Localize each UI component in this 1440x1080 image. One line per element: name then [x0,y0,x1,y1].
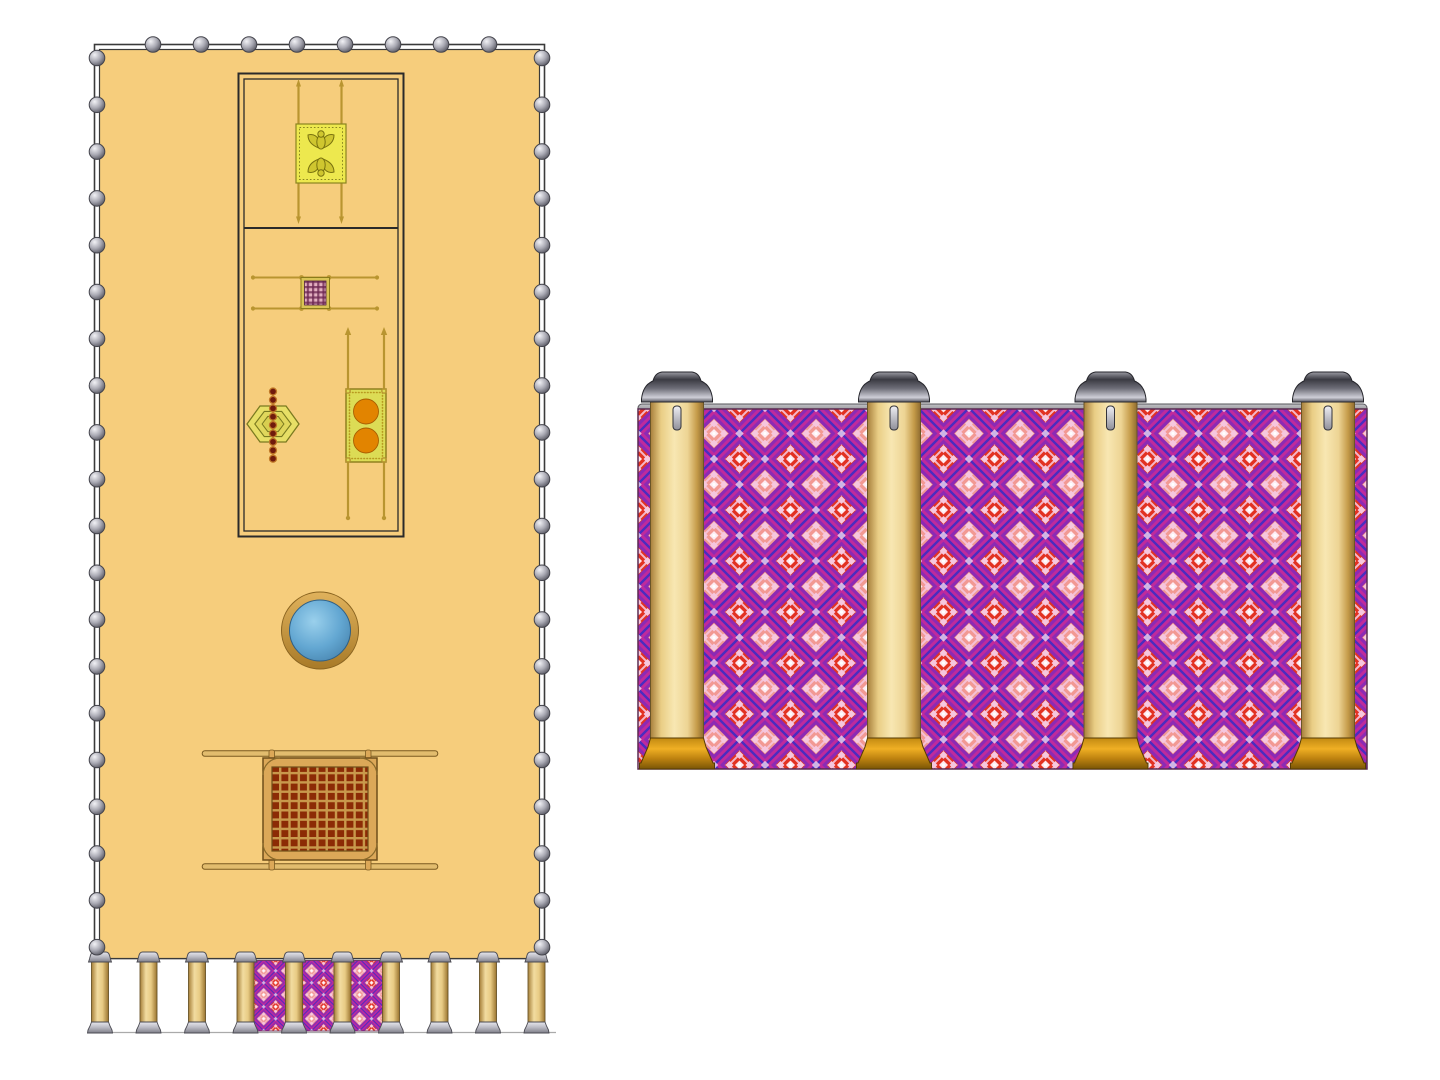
fence-post [89,144,105,160]
fence-post [534,191,550,207]
fence-post [534,237,550,253]
fence-post [89,97,105,113]
fence-post [534,846,550,862]
fence-post [481,37,497,53]
fence-post [89,939,105,955]
tabernacle-illustration [0,0,1440,1080]
court-pillar [640,372,715,769]
fence-post [89,799,105,815]
fence-post [534,50,550,66]
fence-post [89,705,105,721]
courtyard-gate-curtain [246,961,392,1032]
fence-post [89,518,105,534]
lampstand-lamps [270,388,277,462]
fence-post [89,659,105,675]
fence-post [89,284,105,300]
gate-pillar [427,952,452,1033]
fence-post [89,425,105,441]
bronze-laver [282,592,359,669]
fence-post [89,378,105,394]
gate-pillar [136,952,161,1033]
fence-post [534,799,550,815]
fence-post [534,144,550,160]
gate-pillar [524,952,549,1033]
fence-post [534,471,550,487]
fence-post [89,752,105,768]
fence-post [534,612,550,628]
fence-post [534,893,550,909]
fence-post [89,237,105,253]
fence-post [534,378,550,394]
fence-post [89,471,105,487]
fence-post [534,425,550,441]
court-pillar [1291,372,1366,769]
fence-post [534,565,550,581]
gate-pillar [233,952,258,1033]
gate-pillar [379,952,404,1033]
fence-post [89,612,105,628]
fence-post [89,331,105,347]
fence-post [534,705,550,721]
altar-grate [272,767,368,851]
gate-curtain [638,409,1367,769]
fence-post [534,284,550,300]
fence-post [337,37,353,53]
fence-post [89,565,105,581]
gate-elevation-view [638,372,1367,769]
fence-post [289,37,305,53]
fence-post [534,659,550,675]
fence-post [534,939,550,955]
gate-pillar [185,952,210,1033]
courtyard-plan-view [88,37,557,1033]
fence-post [89,50,105,66]
fence-post [433,37,449,53]
gate-pillar [88,952,113,1033]
court-pillar [1073,372,1148,769]
gate-pillar [330,952,355,1033]
fence-post [534,752,550,768]
illustration-svg [0,0,1440,1080]
fence-post [145,37,161,53]
court-pillar [857,372,932,769]
fence-post [385,37,401,53]
fence-post [534,518,550,534]
fence-post [89,893,105,909]
fence-post [193,37,209,53]
fence-post [241,37,257,53]
fence-post [534,97,550,113]
fence-post [89,846,105,862]
fence-post [89,191,105,207]
showbread-cloth [305,281,327,305]
gate-pillar [476,952,501,1033]
gate-pillar [282,952,307,1033]
fence-post [534,331,550,347]
